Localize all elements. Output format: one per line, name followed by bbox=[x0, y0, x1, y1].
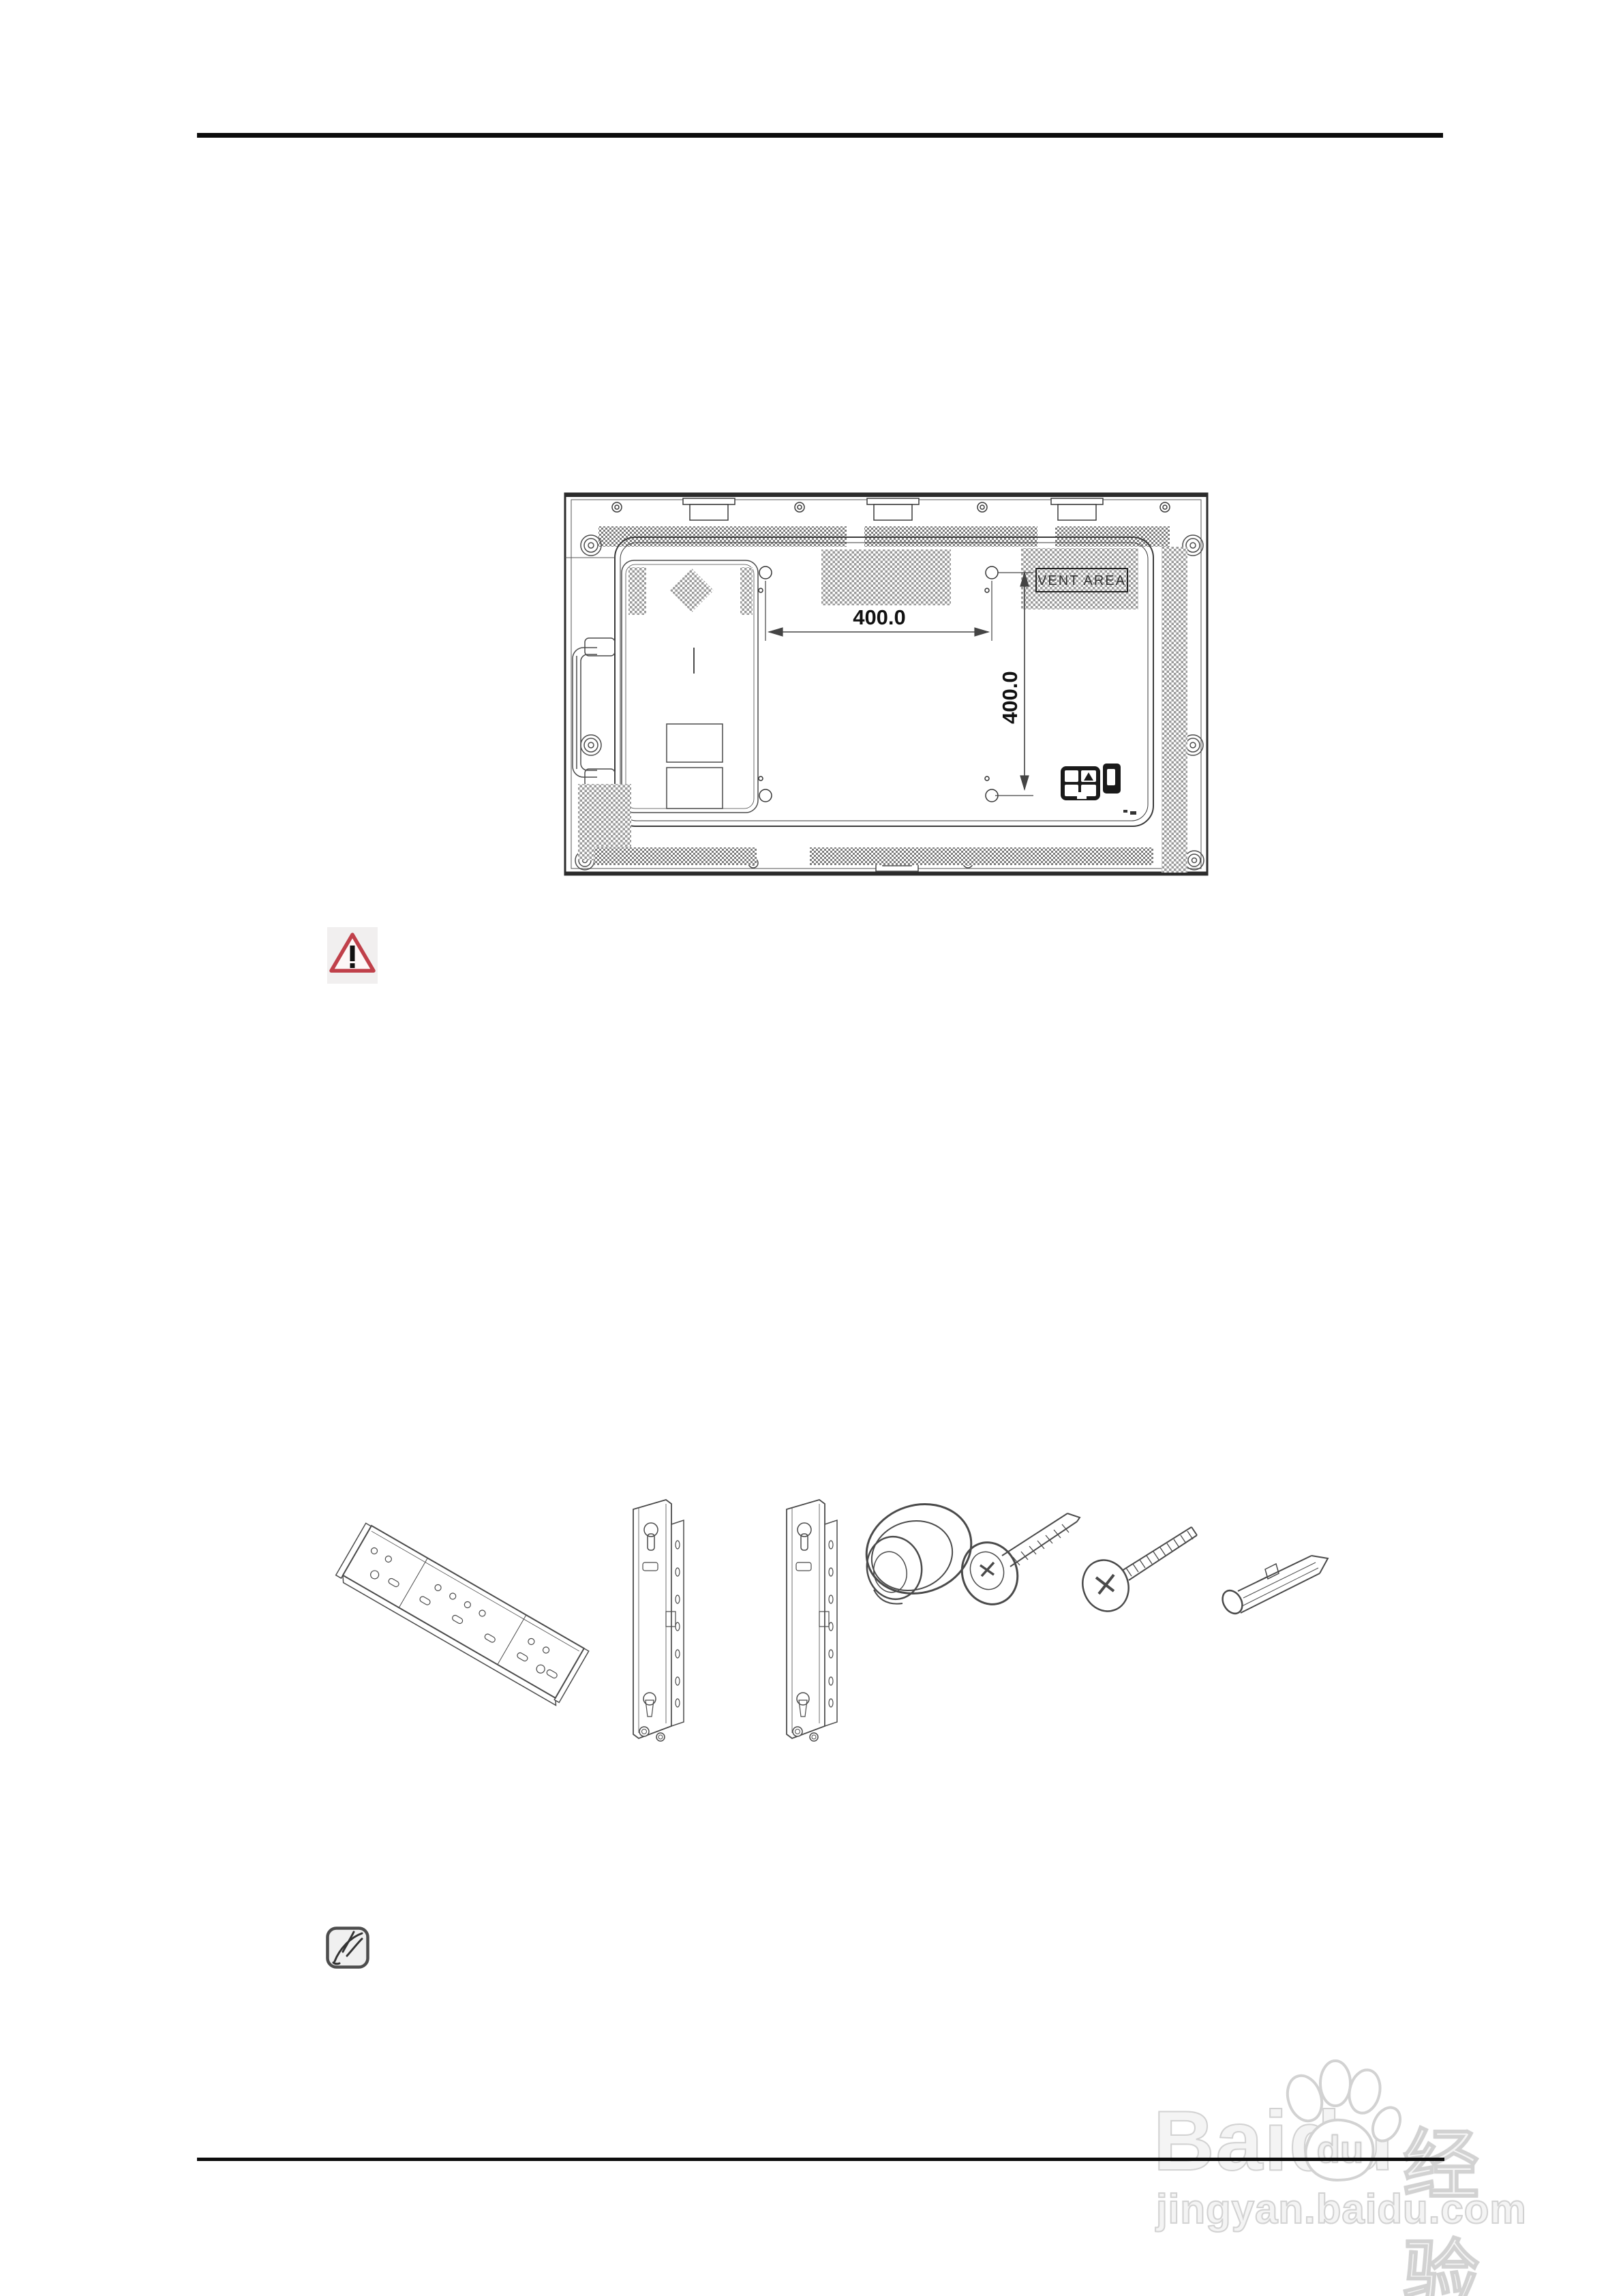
watermark-url-text: jingyan.baidu.com bbox=[1156, 2186, 1527, 2233]
manual-page: Baidu 经验 jingyan.baidu.com du bbox=[0, 0, 1623, 2296]
footer-rule bbox=[197, 2158, 1444, 2161]
note-icon bbox=[326, 1927, 369, 1969]
warning-icon bbox=[327, 927, 378, 984]
baidu-paw-icon: du bbox=[1269, 2055, 1406, 2186]
watermark-paw-text: du bbox=[1317, 2128, 1363, 2171]
header-rule bbox=[197, 133, 1443, 138]
vent-column-far-right bbox=[1162, 547, 1187, 873]
holder-ring-image bbox=[855, 1491, 983, 1607]
vent-column-right bbox=[740, 567, 753, 615]
vent-area-label: VENT AREA bbox=[1037, 573, 1126, 588]
vent-strip-bottom-left bbox=[594, 847, 757, 865]
vent-strip-bottom-right bbox=[810, 847, 1153, 865]
vent-column-left bbox=[628, 567, 646, 615]
plastic-anchor-image bbox=[1219, 1556, 1328, 1617]
baidu-watermark: Baidu 经验 jingyan.baidu.com du bbox=[1152, 2051, 1561, 2248]
display-rear-diagram: VENT AREA 400.0 400.0 bbox=[564, 492, 1209, 876]
tapping-screw-image bbox=[954, 1513, 1080, 1612]
wall-mount-plate-image bbox=[335, 1523, 589, 1706]
wall-mount-kit-illustration bbox=[334, 1486, 1336, 1752]
dimension-horizontal-label: 400.0 bbox=[853, 605, 906, 629]
vertical-bracket-left-image bbox=[633, 1500, 684, 1741]
top-mount-tabs bbox=[612, 498, 1170, 520]
dimension-vertical-label: 400.0 bbox=[998, 671, 1022, 724]
vertical-bracket-right-image bbox=[787, 1500, 837, 1741]
machine-screw-image bbox=[1076, 1527, 1197, 1618]
vent-patch-center bbox=[821, 549, 951, 605]
